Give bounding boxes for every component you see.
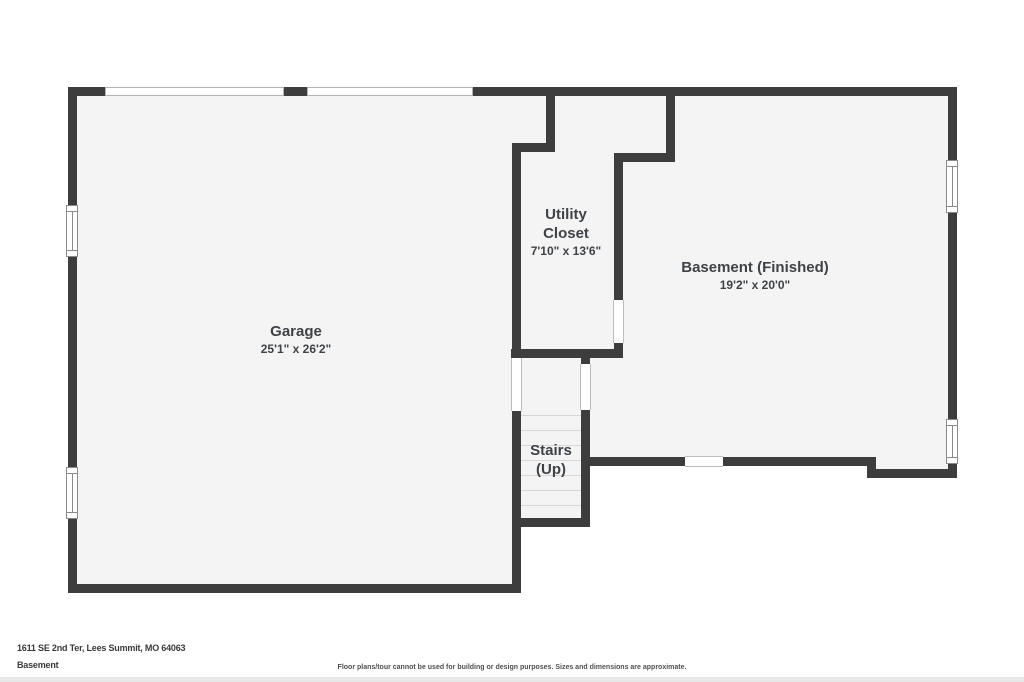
wall-notch-bottom: [867, 469, 957, 478]
utility-dims: 7'10" x 13'6": [531, 244, 601, 259]
wall-basement-west-upper: [614, 153, 623, 301]
wall-stairs-right: [581, 410, 590, 527]
wall-utility-jog-right: [614, 153, 675, 162]
room-label-stairs: Stairs (Up): [530, 441, 572, 479]
room-label-basement: Basement (Finished) 19'2" x 20'0": [681, 258, 829, 293]
garage-dims: 25'1" x 26'2": [261, 342, 331, 357]
stairs-name-line1: Stairs: [530, 441, 572, 460]
footer-address: 1611 SE 2nd Ter, Lees Summit, MO 64063: [17, 643, 185, 653]
basement-dims: 19'2" x 20'0": [681, 278, 829, 293]
window-left-upper: [66, 205, 78, 257]
door-opening-landing-basement: [580, 364, 591, 410]
footer-floor-label: Basement: [17, 660, 58, 670]
floor-garage-lower: [77, 457, 512, 584]
window-right-upper: [946, 160, 958, 213]
wall-stub-left: [546, 96, 555, 152]
utility-name-line1: Utility: [531, 205, 601, 224]
room-label-garage: Garage 25'1" x 26'2": [261, 322, 331, 357]
stairs-name-line2: (Up): [530, 460, 572, 479]
garage-door-symbol-1: [105, 87, 284, 96]
basement-name: Basement (Finished): [681, 258, 829, 277]
utility-name-line2: Closet: [531, 224, 601, 243]
wall-utility-left: [512, 143, 521, 359]
wall-utility-bottom: [511, 349, 623, 358]
wall-stairs-left: [512, 411, 521, 593]
room-label-utility-closet: Utility Closet 7'10" x 13'6": [531, 205, 601, 259]
wall-basement-bottom: [590, 457, 876, 466]
door-opening-utility: [613, 300, 624, 343]
wall-garage-bottom: [68, 584, 521, 593]
floorplan-page: Garage 25'1" x 26'2" Utility Closet 7'10…: [0, 0, 1024, 682]
window-right-lower: [946, 419, 958, 464]
garage-name: Garage: [261, 322, 331, 341]
window-left-lower: [66, 467, 78, 519]
garage-door-symbol-2: [307, 87, 473, 96]
door-opening-basement-south: [685, 456, 723, 467]
wall-stairs-bottom: [512, 518, 590, 527]
footer-disclaimer: Floor plans/tour cannot be used for buil…: [338, 664, 687, 671]
footer-divider: [0, 677, 1024, 682]
door-opening-garage-landing: [511, 358, 522, 411]
